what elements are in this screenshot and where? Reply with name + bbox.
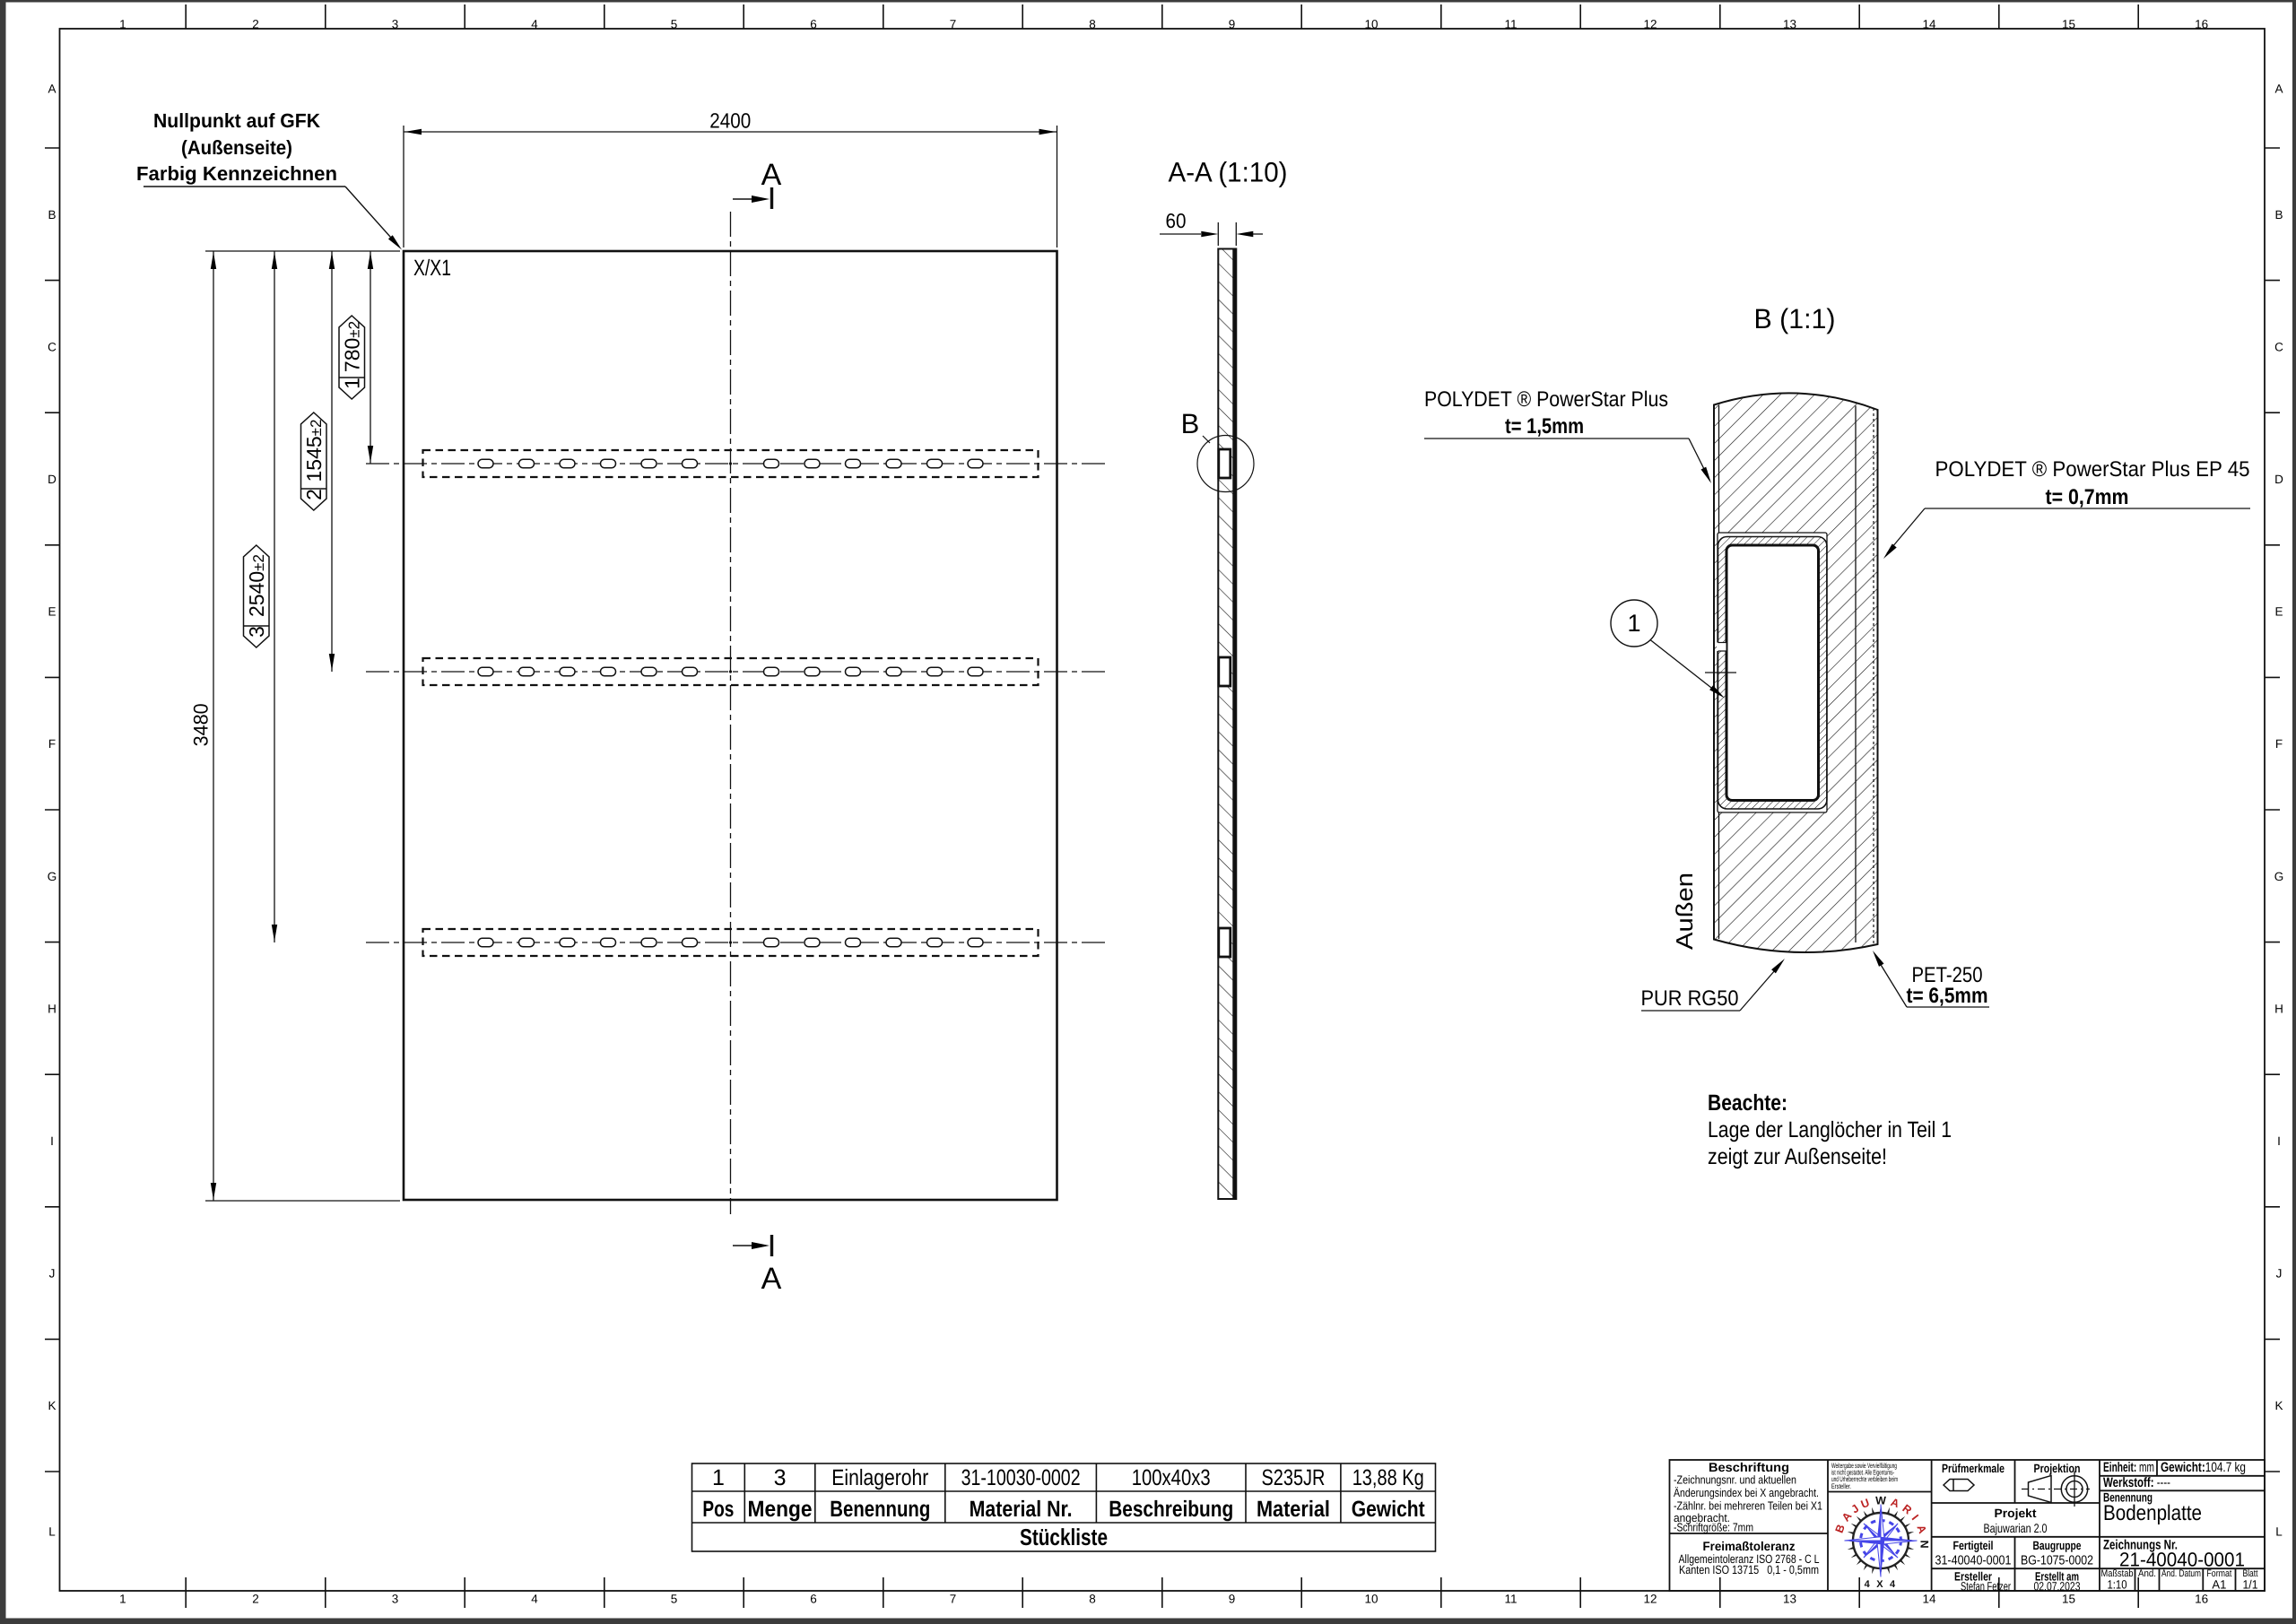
svg-text:Fertigteil: Fertigteil [1953, 1539, 1994, 1552]
svg-text:10: 10 [1364, 18, 1378, 31]
svg-text:8: 8 [1089, 1593, 1096, 1606]
svg-text:2400: 2400 [709, 109, 751, 133]
svg-text:1: 1 [712, 1465, 725, 1490]
svg-text:I: I [2277, 1134, 2281, 1148]
svg-text:14: 14 [1922, 18, 1936, 31]
svg-text:31-10030-0002: 31-10030-0002 [961, 1465, 1081, 1490]
svg-text:02.07.2023: 02.07.2023 [2034, 1580, 2081, 1594]
svg-text:Nullpunkt auf GFK: Nullpunkt auf GFK [153, 109, 320, 132]
svg-text:2: 2 [302, 489, 326, 500]
svg-text:S235JR: S235JR [1261, 1465, 1325, 1490]
svg-text:A: A [2274, 83, 2283, 96]
svg-text:K: K [2274, 1399, 2283, 1412]
svg-text:9: 9 [1229, 18, 1236, 31]
svg-text:A: A [761, 1262, 782, 1296]
svg-text:L: L [48, 1525, 56, 1539]
svg-text:F: F [48, 737, 56, 751]
svg-text:B: B [48, 208, 56, 221]
svg-text:2: 2 [252, 18, 259, 31]
svg-text:6: 6 [810, 18, 817, 31]
svg-text:3: 3 [774, 1465, 787, 1490]
svg-text:Material Nr.: Material Nr. [970, 1497, 1073, 1522]
svg-text:E: E [48, 605, 56, 619]
svg-text:I: I [50, 1134, 54, 1148]
svg-text:Projekt: Projekt [1995, 1507, 2038, 1520]
svg-text:zeigt zur Außenseite!: zeigt zur Außenseite! [1708, 1144, 1887, 1169]
svg-text:4: 4 [531, 18, 538, 31]
svg-text:Bodenplatte: Bodenplatte [2103, 1501, 2202, 1525]
svg-text:10: 10 [1364, 1593, 1378, 1606]
svg-text:16: 16 [2195, 18, 2208, 31]
svg-text:X/X1: X/X1 [413, 256, 451, 281]
svg-text:J: J [2276, 1267, 2283, 1281]
svg-text:13,88 Kg: 13,88 Kg [1352, 1465, 1424, 1490]
svg-text:Baugruppe: Baugruppe [2033, 1539, 2082, 1552]
svg-text:t= 6,5mm: t= 6,5mm [1907, 984, 1988, 1008]
svg-text:3: 3 [245, 626, 268, 638]
svg-text:Werkstoff: ----: Werkstoff: ---- [2103, 1475, 2170, 1490]
svg-text:Farbig Kennzeichnen: Farbig Kennzeichnen [136, 162, 337, 185]
svg-text:C: C [2274, 340, 2283, 353]
svg-text:1:10: 1:10 [2108, 1578, 2127, 1592]
svg-text:L: L [2275, 1525, 2283, 1539]
svg-text:13: 13 [1783, 1593, 1796, 1606]
svg-text:F: F [2275, 737, 2283, 751]
svg-text:1/1: 1/1 [2243, 1578, 2258, 1592]
svg-text:31-40040-0001: 31-40040-0001 [1935, 1554, 2012, 1568]
svg-text:Benennung: Benennung [830, 1497, 930, 1522]
svg-text:Änd. Datum: Änd. Datum [2161, 1568, 2201, 1579]
svg-text:Kanten ISO 13715 0,1 - 0,5mm: Kanten ISO 13715 0,1 - 0,5mm [1679, 1563, 1819, 1576]
svg-text:12: 12 [1643, 1593, 1657, 1606]
svg-text:Prüfmerkmale: Prüfmerkmale [1942, 1462, 2005, 1475]
svg-text:12: 12 [1643, 18, 1657, 31]
svg-text:-Schriftgröße: 7mm: -Schriftgröße: 7mm [1674, 1521, 1753, 1534]
svg-text:E: E [2274, 605, 2283, 619]
svg-text:3: 3 [392, 1593, 399, 1606]
svg-text:16: 16 [2195, 1593, 2208, 1606]
svg-text:A-A (1:10): A-A (1:10) [1169, 157, 1288, 188]
svg-text:13: 13 [1783, 18, 1796, 31]
svg-text:7: 7 [950, 1593, 957, 1606]
svg-text:5: 5 [671, 1593, 678, 1606]
svg-text:POLYDET ® PowerStar Plus: POLYDET ® PowerStar Plus [1424, 387, 1668, 412]
svg-text:A: A [48, 83, 56, 96]
svg-text:PUR RG50: PUR RG50 [1641, 986, 1739, 1011]
svg-text:Menge: Menge [748, 1497, 813, 1522]
svg-text:(Außenseite): (Außenseite) [181, 136, 292, 159]
svg-text:C: C [48, 340, 57, 353]
svg-text:B (1:1): B (1:1) [1754, 303, 1836, 334]
svg-text:15: 15 [2062, 18, 2075, 31]
svg-text:4: 4 [531, 1593, 538, 1606]
svg-text:1: 1 [119, 18, 126, 31]
svg-text:5: 5 [671, 18, 678, 31]
svg-text:Projektion: Projektion [2034, 1462, 2081, 1475]
svg-text:3480: 3480 [190, 703, 213, 746]
svg-text:J: J [49, 1267, 56, 1281]
svg-text:15: 15 [2062, 1593, 2075, 1606]
svg-text:Stefan Fetzer: Stefan Fetzer [1961, 1580, 2011, 1594]
svg-text:Änd.: Änd. [2138, 1568, 2156, 1579]
svg-text:Lage der Langlöcher in Teil 1: Lage der Langlöcher in Teil 1 [1708, 1117, 1952, 1142]
svg-text:Gewicht: Gewicht [1352, 1497, 1426, 1522]
svg-text:H: H [48, 1002, 57, 1015]
svg-text:t= 1,5mm: t= 1,5mm [1505, 414, 1584, 439]
svg-text:11: 11 [1504, 18, 1517, 31]
svg-text:Bajuwarian 2.0: Bajuwarian 2.0 [1984, 1521, 2048, 1535]
svg-text:Freimaßtoleranz: Freimaßtoleranz [1703, 1539, 1796, 1553]
svg-text:BG-1075-0002: BG-1075-0002 [2021, 1554, 2093, 1568]
svg-text:B: B [1181, 408, 1200, 439]
svg-text:2: 2 [252, 1593, 259, 1606]
svg-text:G: G [2274, 870, 2284, 883]
svg-text:Pos: Pos [702, 1497, 734, 1522]
svg-text:POLYDET ® PowerStar Plus EP 45: POLYDET ® PowerStar Plus EP 45 [1935, 457, 2250, 482]
svg-text:N: N [1918, 1540, 1931, 1548]
svg-text:D: D [2274, 473, 2283, 486]
svg-text:A: A [761, 158, 782, 192]
svg-text:D: D [48, 473, 57, 486]
svg-text:14: 14 [1922, 1593, 1936, 1606]
svg-text:t= 0,7mm: t= 0,7mm [2046, 485, 2129, 509]
svg-text:1: 1 [1627, 610, 1640, 637]
svg-text:-Zeichnungsnr. und aktuellen: -Zeichnungsnr. und aktuellen [1674, 1473, 1796, 1487]
svg-text:Ersteller.: Ersteller. [1831, 1482, 1851, 1490]
svg-text:21-40040-0001: 21-40040-0001 [2119, 1549, 2245, 1571]
svg-text:6: 6 [810, 1593, 817, 1606]
svg-text:1: 1 [119, 1593, 126, 1606]
svg-text:A1: A1 [2212, 1578, 2226, 1592]
svg-text:W: W [1875, 1495, 1886, 1507]
svg-text:Beachte:: Beachte: [1708, 1090, 1787, 1116]
svg-text:Material: Material [1257, 1497, 1330, 1522]
svg-text:7: 7 [950, 18, 957, 31]
svg-text:Beschreibung: Beschreibung [1109, 1497, 1233, 1522]
svg-text:Stückliste: Stückliste [1020, 1524, 1108, 1550]
svg-text:Änderungsindex bei X angebrach: Änderungsindex bei X angebracht. [1674, 1486, 1819, 1499]
svg-text:100x40x3: 100x40x3 [1132, 1465, 1211, 1490]
svg-text:8: 8 [1089, 18, 1096, 31]
svg-text:Einheit: mm: Einheit: mm [2103, 1460, 2154, 1475]
svg-text:G: G [48, 870, 57, 883]
svg-text:3: 3 [392, 18, 399, 31]
svg-text:B: B [2274, 208, 2283, 221]
svg-text:11: 11 [1504, 1593, 1517, 1606]
svg-text:9: 9 [1229, 1593, 1236, 1606]
svg-text:Gewicht:104.7 kg: Gewicht:104.7 kg [2161, 1460, 2246, 1475]
svg-text:K: K [48, 1399, 56, 1412]
svg-text:4 X 4: 4 X 4 [1865, 1579, 1898, 1590]
svg-text:H: H [2274, 1002, 2283, 1015]
svg-text:Außen: Außen [1671, 873, 1698, 950]
svg-text:60: 60 [1166, 209, 1187, 232]
svg-text:Einlagerohr: Einlagerohr [831, 1465, 928, 1490]
svg-text:1: 1 [340, 378, 363, 389]
